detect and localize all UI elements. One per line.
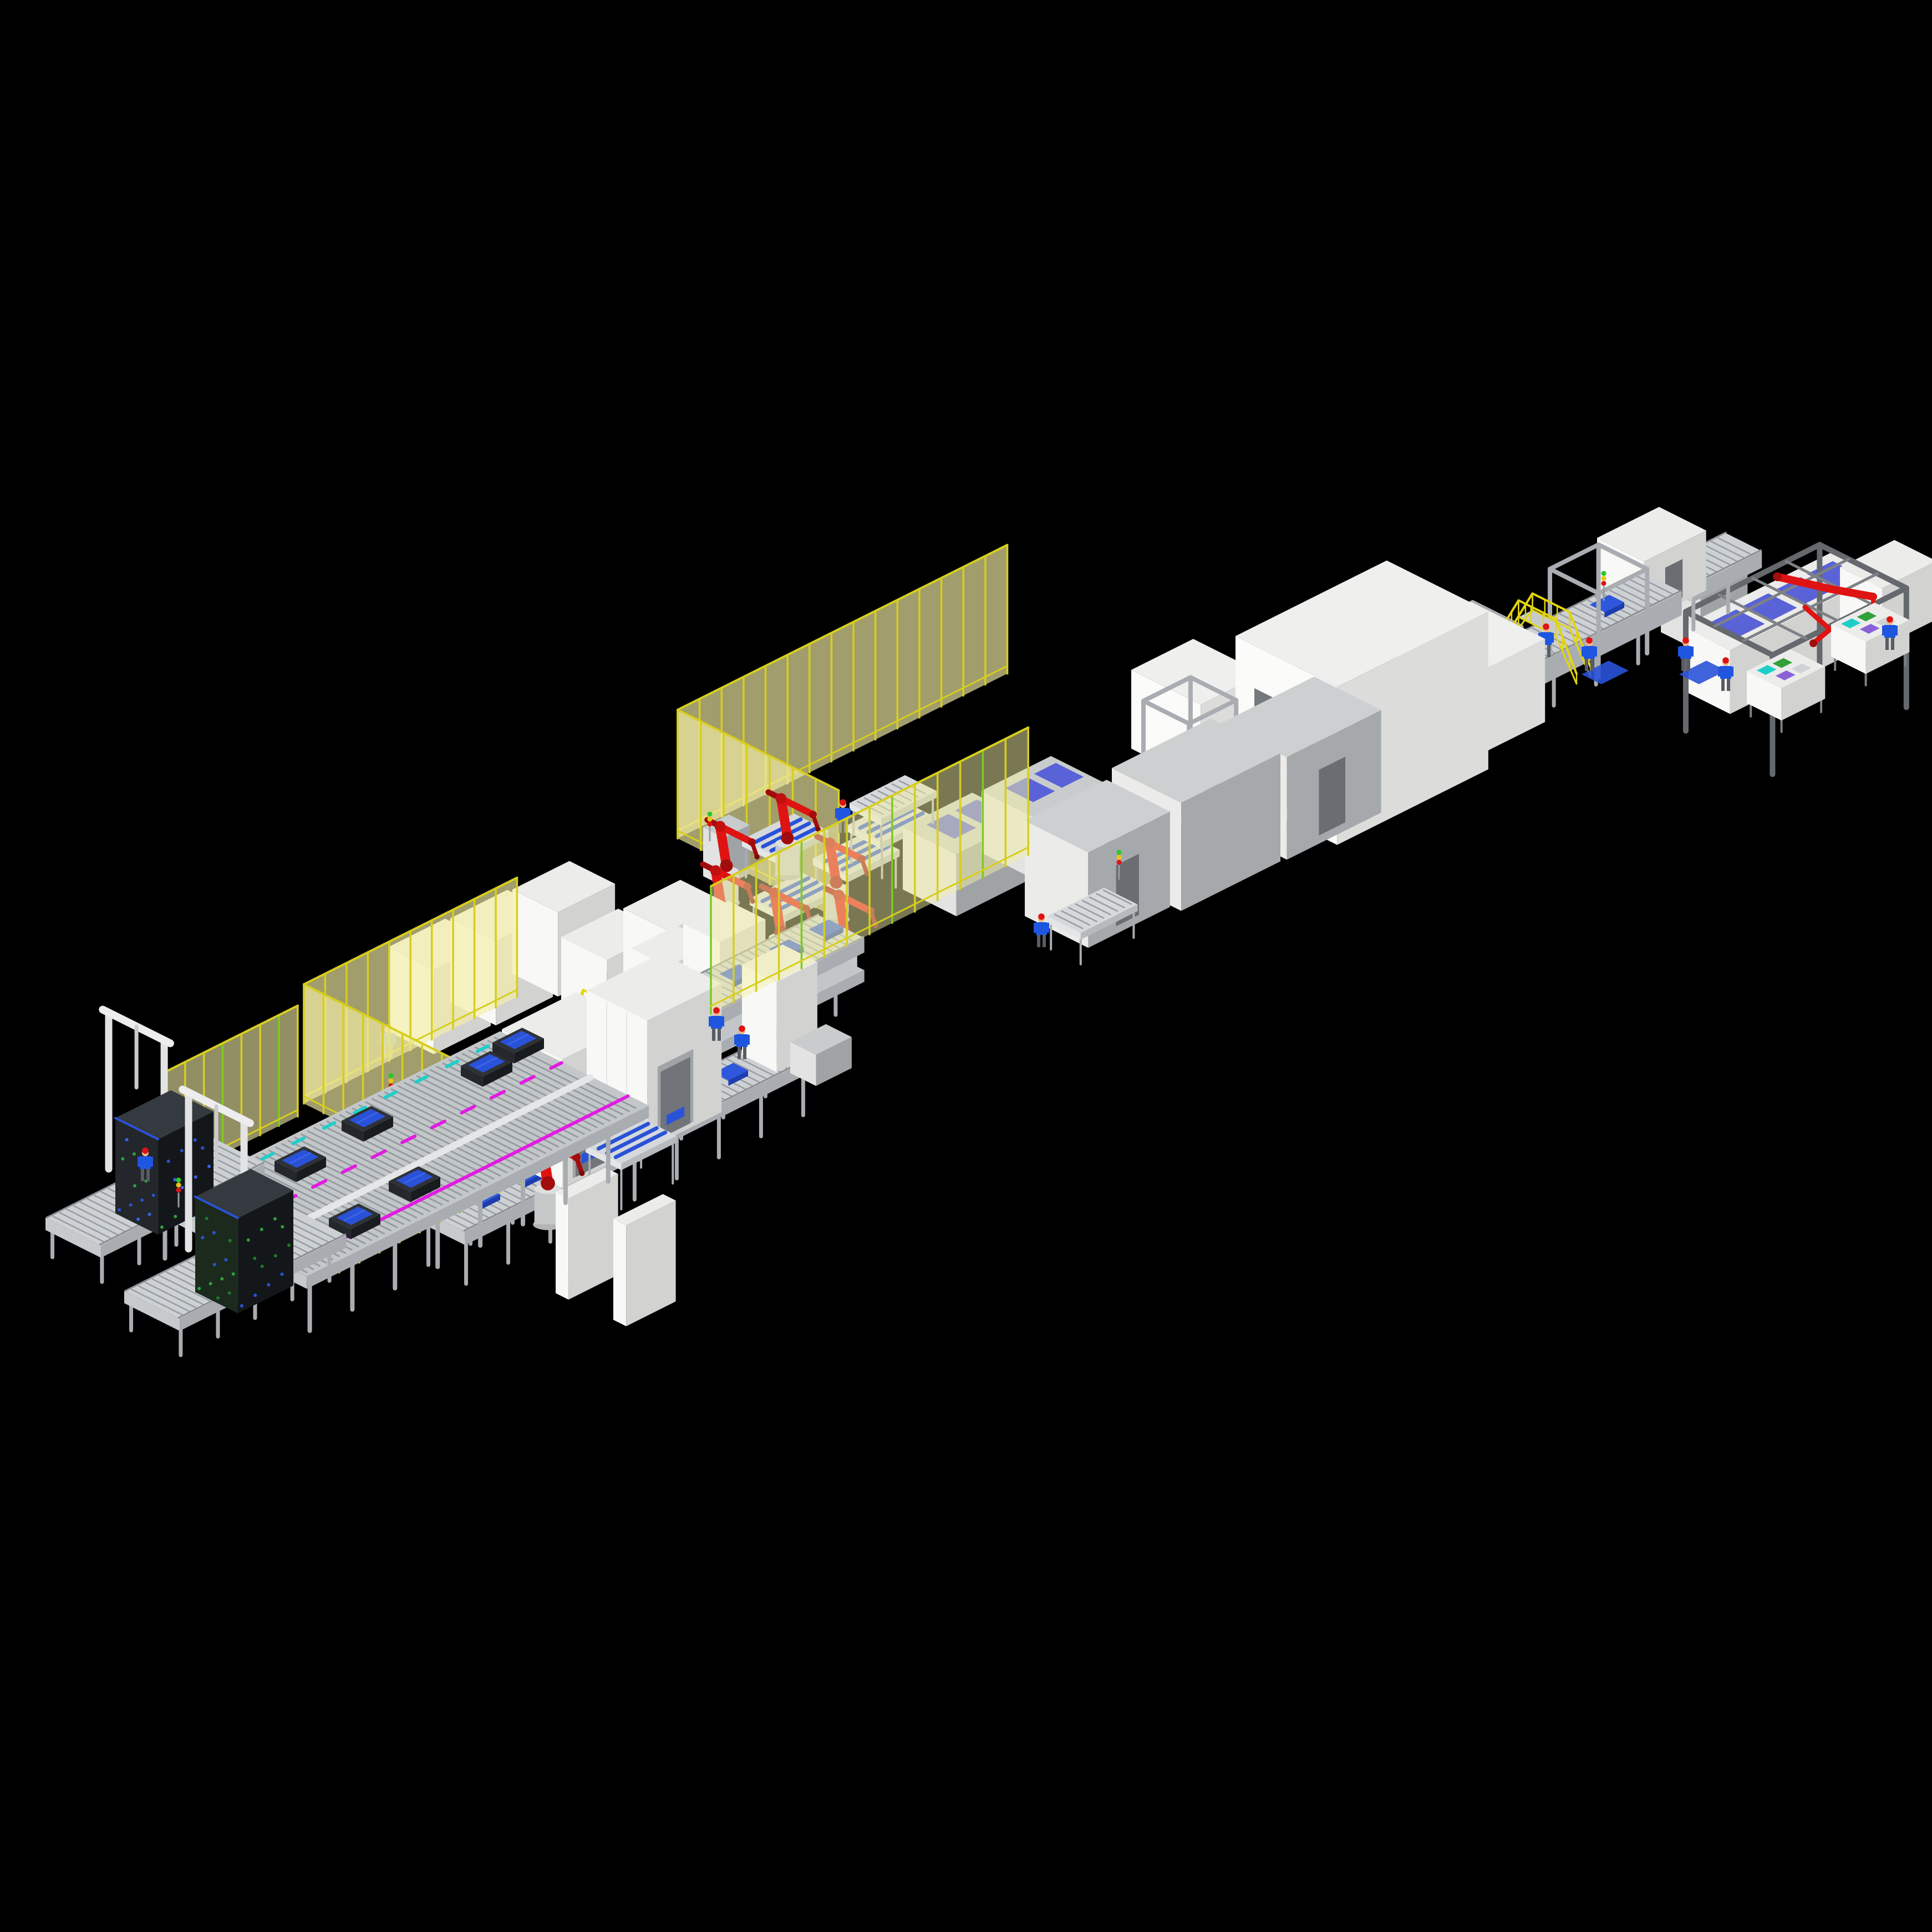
production-line-render: [0, 0, 1932, 1932]
render-viewport: [0, 0, 1932, 1932]
crate-stack-2: [195, 1169, 293, 1314]
cell1-door-2: [613, 1194, 676, 1326]
